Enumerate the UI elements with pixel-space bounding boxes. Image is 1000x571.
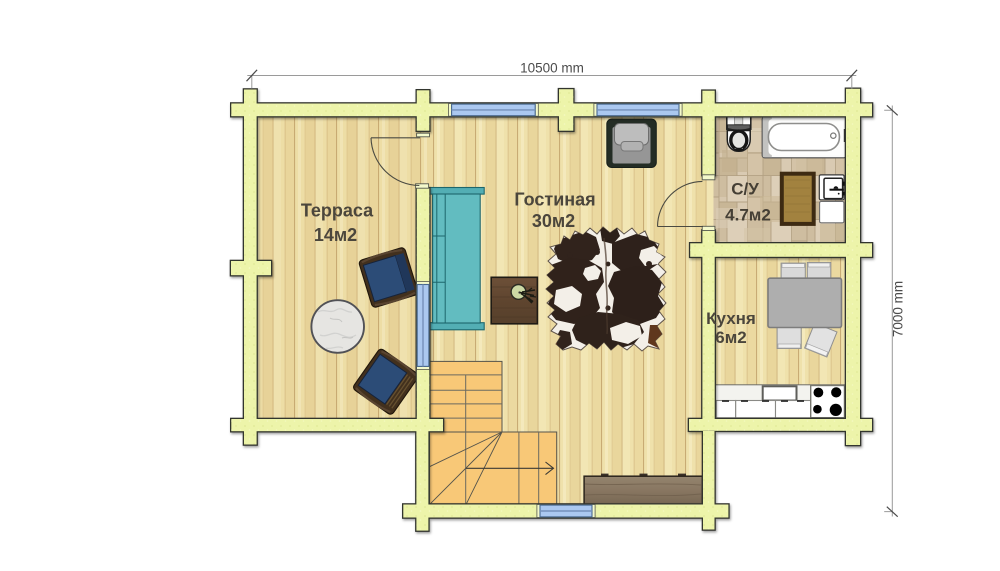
svg-text:С/У: С/У — [731, 180, 759, 199]
svg-text:10500 mm: 10500 mm — [520, 61, 584, 76]
svg-text:7000 mm: 7000 mm — [891, 281, 906, 337]
svg-text:Гостиная: Гостиная — [514, 190, 595, 210]
svg-text:30м2: 30м2 — [532, 211, 575, 231]
svg-text:Терраса: Терраса — [301, 200, 374, 220]
svg-text:4.7м2: 4.7м2 — [725, 205, 771, 224]
svg-text:6м2: 6м2 — [715, 328, 747, 347]
svg-text:14м2: 14м2 — [314, 225, 357, 245]
svg-text:Кухня: Кухня — [706, 309, 756, 328]
